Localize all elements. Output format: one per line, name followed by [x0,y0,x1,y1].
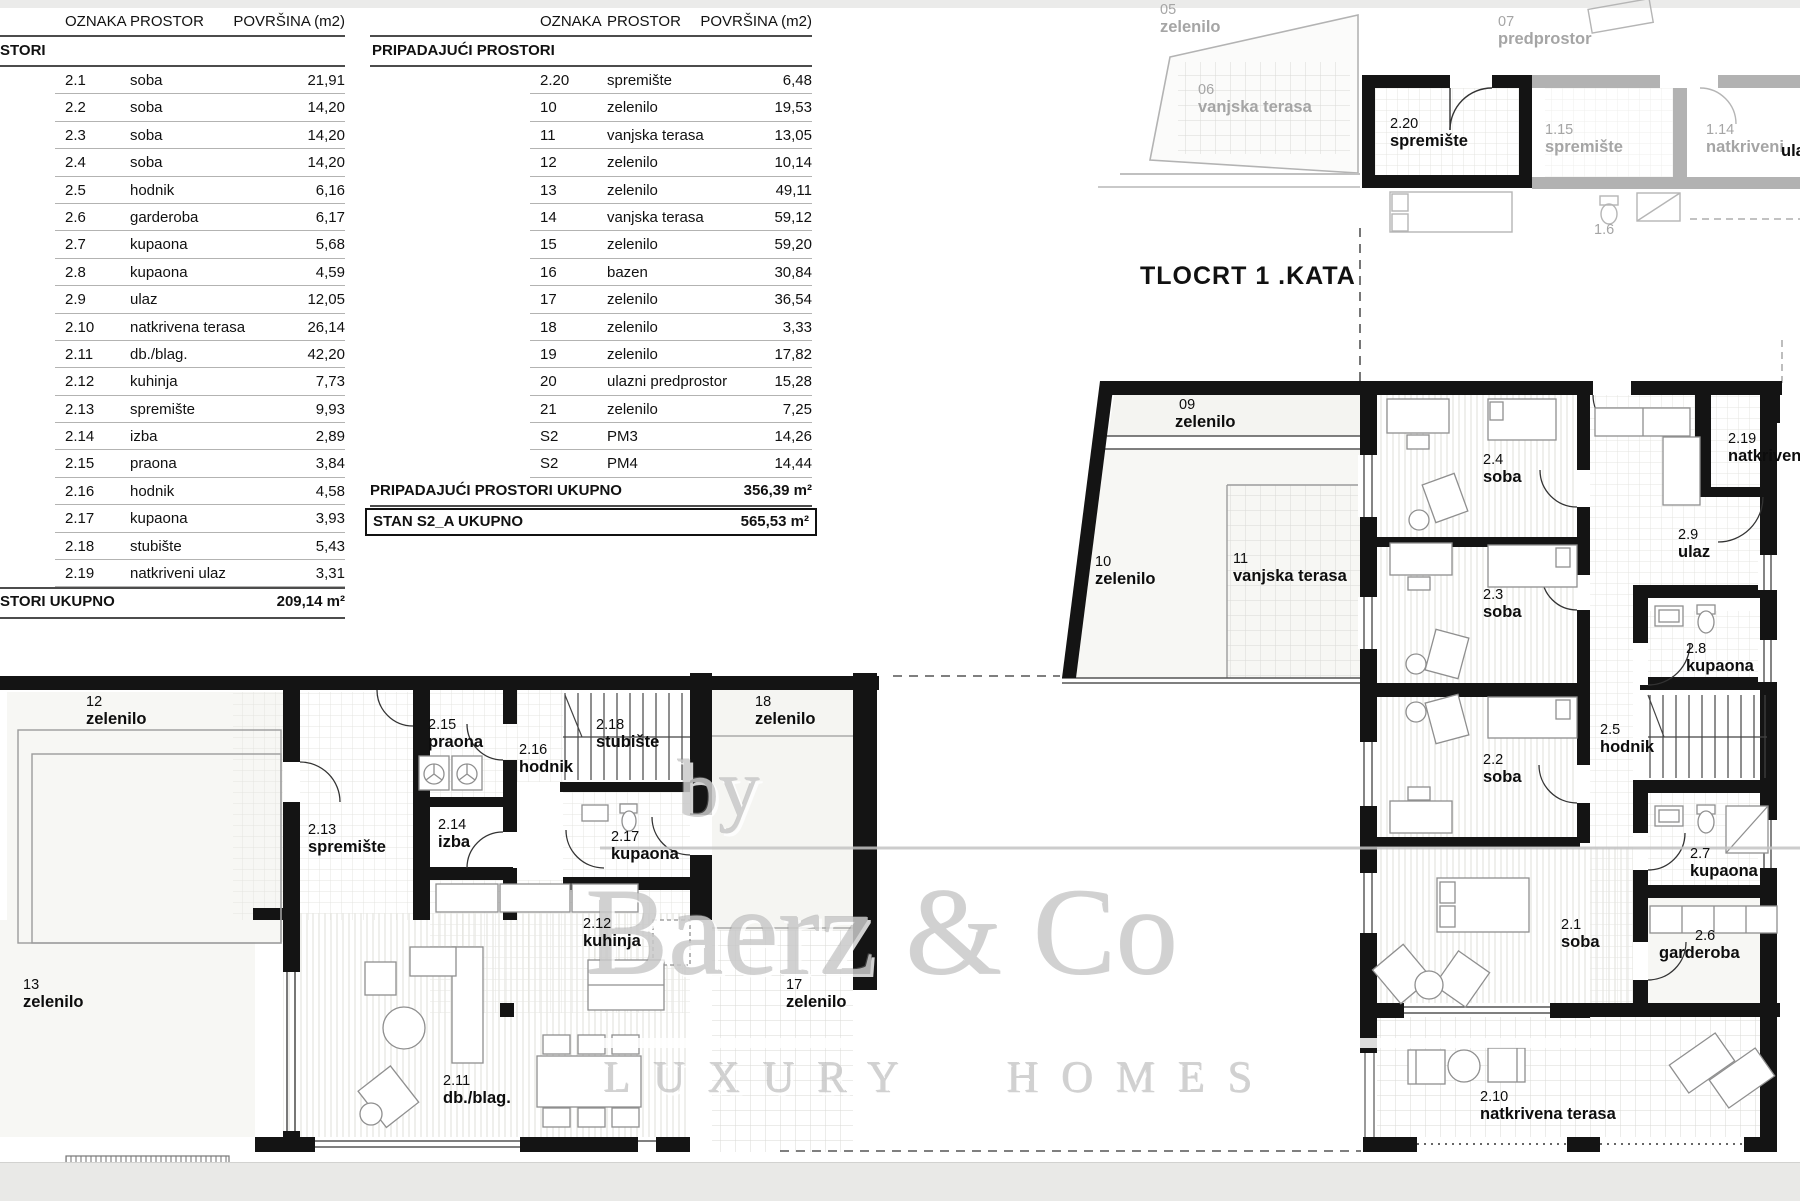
floorplan-sheet: { "left_table": { "headers": ["OZNAKA", … [0,0,1800,1200]
room-label-2-2: 2.2soba [1483,752,1522,787]
table-row: 20 ulazni predprostor 15,28 [530,368,812,395]
room-label-11: 11vanjska terasa [1233,551,1347,586]
table-section-label: PRIPADAJUĆI PROSTORI [370,37,812,67]
table-row: 2.14 izba 2,89 [55,423,345,450]
table-row: S2 PM4 14,44 [530,450,812,477]
table-row: 2.16 hodnik 4,58 [55,478,345,505]
table-row: 2.17 kupaona 3,93 [55,505,345,532]
associated-areas-rows: 2.20 spremište 6,48 10 zelenilo 19,53 11… [530,67,812,478]
ghost-floor [1098,0,1800,388]
room-label-2-18: 2.18stubište [596,717,659,752]
plan-title: TLOCRT 1 .KATA [1140,262,1356,291]
ground-strip [0,1162,1800,1201]
watermark-by: by [678,742,760,836]
table-row: 2.6 garderoba 6,17 [55,204,345,231]
room-label-2-9: 2.9ulaz [1678,527,1710,562]
table-row: 2.8 kupaona 4,59 [55,259,345,286]
table-row: 14 vanjska terasa 59,12 [530,204,812,231]
associated-areas-table: OZNAKA PROSTOR POVRŠINA (m2) PRIPADAJUĆI… [370,8,812,536]
table-row: 2.12 kuhinja 7,73 [55,368,345,395]
table-row: 2.9 ulaz 12,05 [55,286,345,313]
room-label-2-5: 2.5hodnik [1600,722,1654,757]
table-row: S2 PM3 14,26 [530,423,812,450]
room-label-1-15: 1.15spremište [1545,122,1623,157]
table-row: 2.15 praona 3,84 [55,450,345,477]
room-label-2-14: 2.14izba [438,817,470,852]
table-row: 2.19 natkriveni ulaz 3,31 [55,560,345,587]
table-section-label: STORI [0,37,345,67]
room-label-2-16: 2.16hodnik [519,742,573,777]
room-label-2-1: 2.1soba [1561,917,1600,952]
room-label-1-14: 1.14natkriveni [1706,122,1784,157]
apartment-total: STAN S2_A UKUPNO 565,53 m² [365,508,817,536]
first-floor [1062,381,1782,1152]
table-row: 2.7 kupaona 5,68 [55,231,345,258]
watermark-tagline: LUXURY HOMES [604,1052,1276,1103]
room-label-2-15: 2.15praona [428,717,483,752]
table-row: 16 bazen 30,84 [530,259,812,286]
room-label-07: 07predprostor [1498,14,1592,49]
room-label-2-13: 2.13spremište [308,822,386,857]
table-row: 10 zelenilo 19,53 [530,94,812,121]
associated-areas-subtotal: PRIPADAJUĆI PROSTORI UKUPNO 356,39 m² [370,478,812,507]
room-label-2-7: 2.7kupaona [1690,846,1758,881]
main-areas-rows: 2.1 soba 21,91 2.2 soba 14,20 2.3 soba 1… [55,67,345,587]
table-header: OZNAKA PROSTOR POVRŠINA (m2) [370,8,812,37]
room-label-2-19: 2.19natkriven [1728,431,1800,466]
room-label-13: 13zelenilo [23,977,84,1012]
watermark-brand: Baerz & Co [586,862,1178,1004]
table-row: 12 zelenilo 10,14 [530,149,812,176]
main-areas-table: OZNAKA PROSTOR POVRŠINA (m2) STORI 2.1 s… [0,8,345,619]
room-label-10: 10zelenilo [1095,554,1156,589]
table-row: 21 zelenilo 7,25 [530,396,812,423]
room-label-2-17: 2.17kupaona [611,829,679,864]
room-label-2-6: 2.6garderoba [1659,928,1740,963]
main-areas-total: STORI UKUPNO 209,14 m² [0,587,345,619]
room-label-ula: ula [1781,142,1800,161]
room-label-2-10: 2.10natkrivena terasa [1480,1089,1616,1124]
table-row: 17 zelenilo 36,54 [530,286,812,313]
room-label-2-3: 2.3soba [1483,587,1522,622]
table-row: 2.2 soba 14,20 [55,94,345,121]
room-label-09: 09zelenilo [1175,397,1236,432]
table-row: 11 vanjska terasa 13,05 [530,122,812,149]
room-label-2-20: 2.20spremište [1390,116,1468,151]
table-row: 15 zelenilo 59,20 [530,231,812,258]
table-row: 2.20 spremište 6,48 [530,67,812,94]
table-row: 2.11 db./blag. 42,20 [55,341,345,368]
table-row: 2.1 soba 21,91 [55,67,345,94]
table-row: 2.18 stubište 5,43 [55,533,345,560]
table-row: 2.10 natkrivena terasa 26,14 [55,314,345,341]
room-label-2-4: 2.4soba [1483,452,1522,487]
room-label-2-8: 2.8kupaona [1686,641,1754,676]
table-row: 13 zelenilo 49,11 [530,177,812,204]
room-label-12: 12zelenilo [86,694,147,729]
room-label-2-12: 2.12kuhinja [583,916,641,951]
table-row: 2.13 spremište 9,93 [55,396,345,423]
staircase-upper [1648,695,1767,778]
room-label-17: 17zelenilo [786,977,847,1012]
room-label-06: 06vanjska terasa [1198,82,1312,117]
table-row: 2.4 soba 14,20 [55,149,345,176]
table-row: 18 zelenilo 3,33 [530,314,812,341]
room-label-05: 05zelenilo [1160,2,1221,37]
room-label-18: 18zelenilo [755,694,816,729]
room-label-1-6: 1.6 [1594,222,1614,238]
table-header: OZNAKA PROSTOR POVRŠINA (m2) [0,8,345,37]
table-row: 2.5 hodnik 6,16 [55,177,345,204]
room-label-2-11: 2.11db./blag. [443,1073,511,1108]
table-row: 19 zelenilo 17,82 [530,341,812,368]
table-row: 2.3 soba 14,20 [55,122,345,149]
